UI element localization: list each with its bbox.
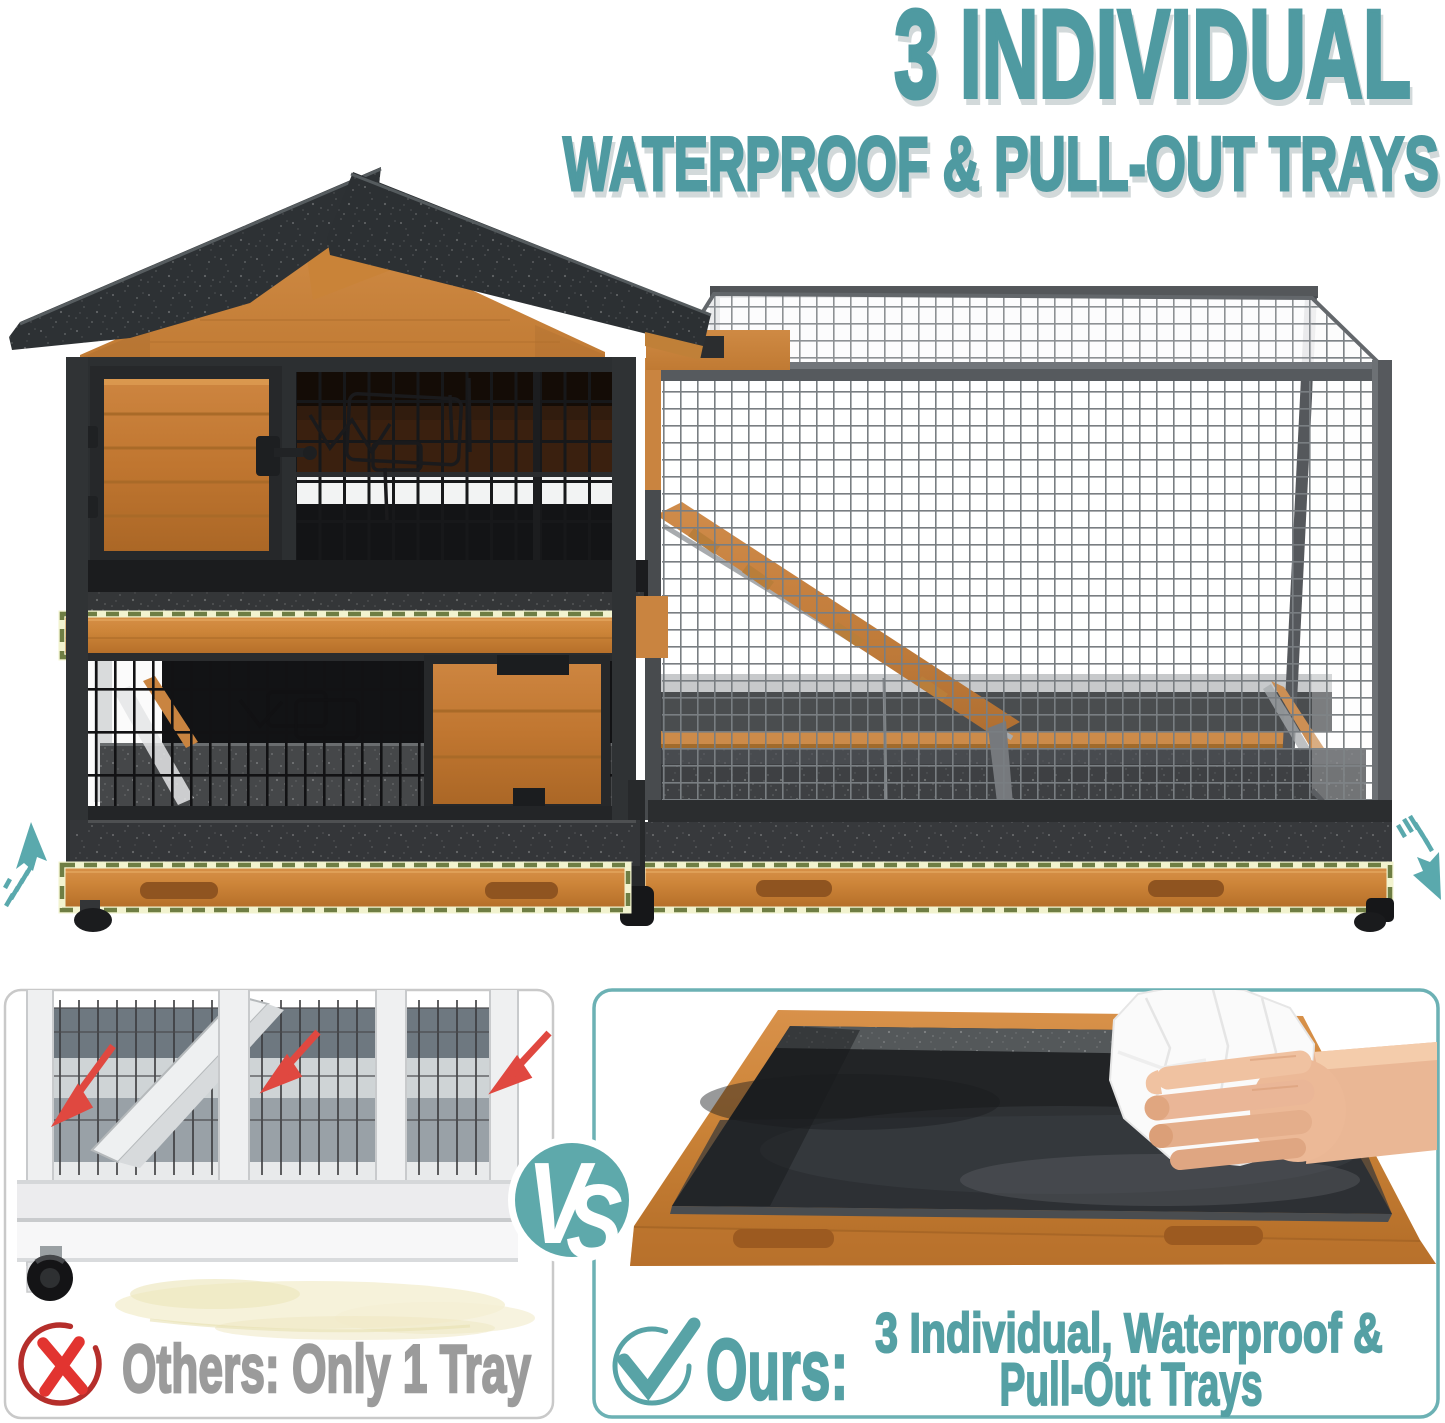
svg-text:S: S — [566, 1163, 623, 1281]
svg-text:3 INDIVIDUAL: 3 INDIVIDUAL — [894, 0, 1411, 125]
svg-text:Pull-Out Trays: Pull-Out Trays — [999, 1350, 1262, 1418]
svg-text:Others: Only 1 Tray: Others: Only 1 Tray — [122, 1332, 531, 1408]
svg-text:Ours:: Ours: — [706, 1322, 848, 1418]
svg-text:WATERPROOF & PULL-OUT TRAYS: WATERPROOF & PULL-OUT TRAYS — [563, 121, 1439, 206]
